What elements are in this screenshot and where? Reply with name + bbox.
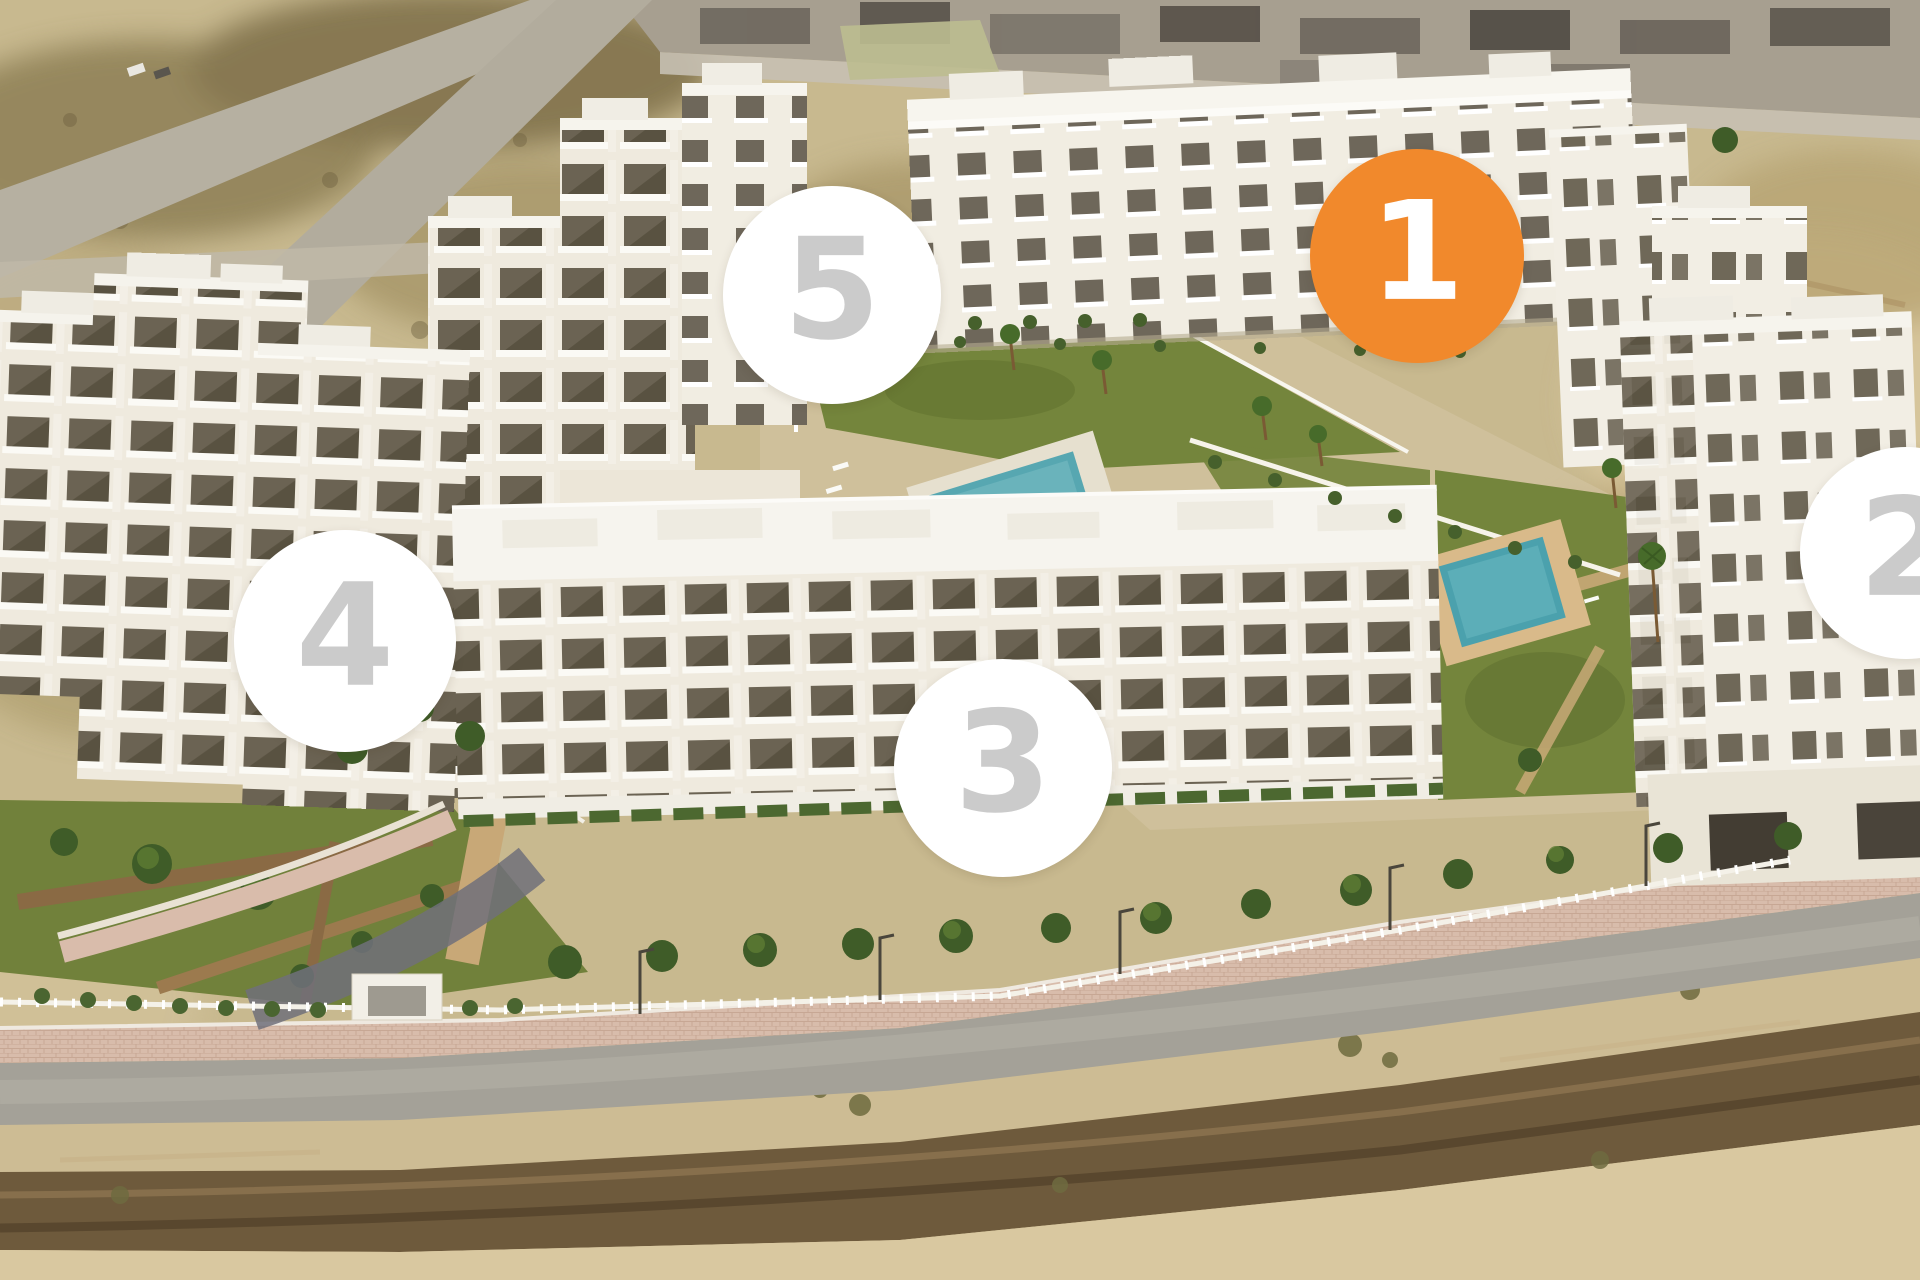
building-marker-3[interactable]: 3 xyxy=(894,659,1112,877)
building-marker-4-number: 4 xyxy=(296,566,395,708)
building-marker-1[interactable]: 1 xyxy=(1310,149,1524,363)
building-marker-5[interactable]: 5 xyxy=(723,186,941,404)
aerial-site-plan: 1 2 3 4 5 xyxy=(0,0,1920,1280)
building-marker-3-number: 3 xyxy=(954,694,1051,834)
building-marker-4[interactable]: 4 xyxy=(234,530,456,752)
building-marker-2-number: 2 xyxy=(1859,481,1920,617)
building-marker-1-number: 1 xyxy=(1369,183,1464,320)
building-marker-5-number: 5 xyxy=(783,221,880,361)
